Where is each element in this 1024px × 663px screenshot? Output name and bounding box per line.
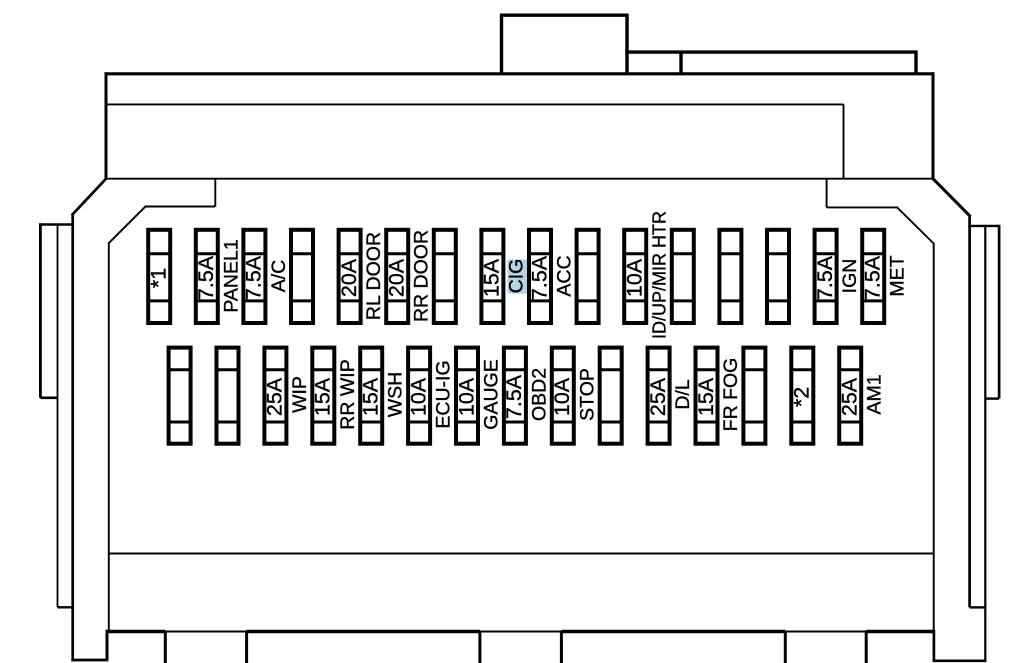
- svg-text:10A: 10A: [623, 258, 647, 297]
- svg-text:RR WIP: RR WIP: [337, 359, 359, 429]
- svg-text:CIG: CIG: [506, 259, 528, 294]
- svg-text:*1: *1: [147, 268, 171, 288]
- svg-text:WIP: WIP: [289, 376, 311, 413]
- svg-text:7.5A: 7.5A: [242, 255, 266, 300]
- svg-text:STOP: STOP: [576, 368, 598, 421]
- svg-text:IGN: IGN: [839, 259, 861, 294]
- svg-text:*2: *2: [790, 387, 814, 407]
- svg-text:25A: 25A: [263, 377, 287, 416]
- svg-text:20A: 20A: [337, 258, 361, 297]
- svg-text:15A: 15A: [311, 377, 335, 416]
- svg-text:WSH: WSH: [385, 372, 407, 418]
- svg-text:FR FOG: FR FOG: [720, 358, 742, 432]
- svg-text:PANEL1: PANEL1: [220, 239, 242, 312]
- svg-text:RR DOOR: RR DOOR: [411, 230, 433, 322]
- svg-text:ACC: ACC: [554, 255, 576, 296]
- svg-text:D/L: D/L: [672, 379, 694, 410]
- svg-text:15A: 15A: [359, 377, 383, 416]
- svg-text:25A: 25A: [646, 377, 670, 416]
- svg-text:A/C: A/C: [268, 260, 290, 293]
- svg-text:7.5A: 7.5A: [861, 255, 885, 300]
- svg-text:ECU-IG: ECU-IG: [433, 360, 455, 428]
- svg-text:7.5A: 7.5A: [502, 374, 526, 419]
- svg-text:15A: 15A: [694, 377, 718, 416]
- svg-text:ID/UP/MIR HTR: ID/UP/MIR HTR: [650, 211, 670, 339]
- svg-text:RL DOOR: RL DOOR: [363, 232, 385, 320]
- svg-text:AM1: AM1: [864, 374, 886, 414]
- svg-text:20A: 20A: [385, 258, 409, 297]
- svg-text:10A: 10A: [550, 377, 574, 416]
- svg-text:OBD2: OBD2: [528, 368, 550, 421]
- svg-text:10A: 10A: [406, 377, 430, 416]
- svg-text:7.5A: 7.5A: [194, 255, 218, 300]
- svg-text:7.5A: 7.5A: [813, 255, 837, 300]
- svg-text:GAUGE: GAUGE: [481, 359, 503, 429]
- svg-text:MET: MET: [887, 255, 909, 296]
- svg-text:7.5A: 7.5A: [527, 255, 551, 300]
- svg-text:10A: 10A: [454, 377, 478, 416]
- svg-text:15A: 15A: [480, 258, 504, 297]
- svg-text:25A: 25A: [838, 377, 862, 416]
